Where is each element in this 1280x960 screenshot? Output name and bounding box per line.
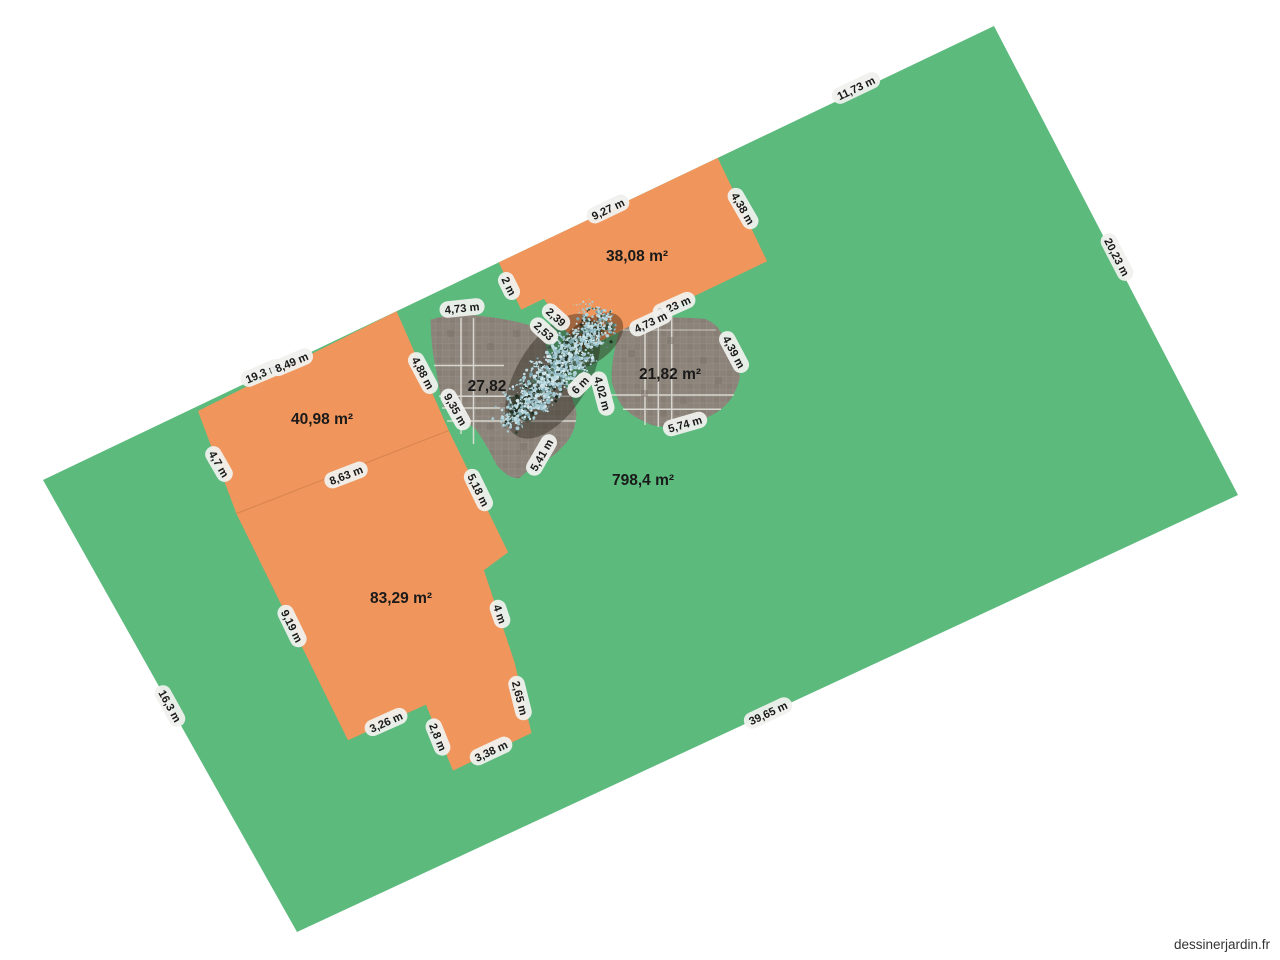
svg-text:38,08 m²: 38,08 m² [606,248,668,265]
svg-text:83,29 m²: 83,29 m² [370,590,432,607]
svg-text:21,82 m²: 21,82 m² [639,366,701,383]
svg-text:dessinerjardin.fr: dessinerjardin.fr [1174,937,1271,952]
svg-text:27,82: 27,82 [468,378,507,395]
svg-text:798,4 m²: 798,4 m² [612,472,674,489]
svg-text:40,98 m²: 40,98 m² [291,411,353,428]
